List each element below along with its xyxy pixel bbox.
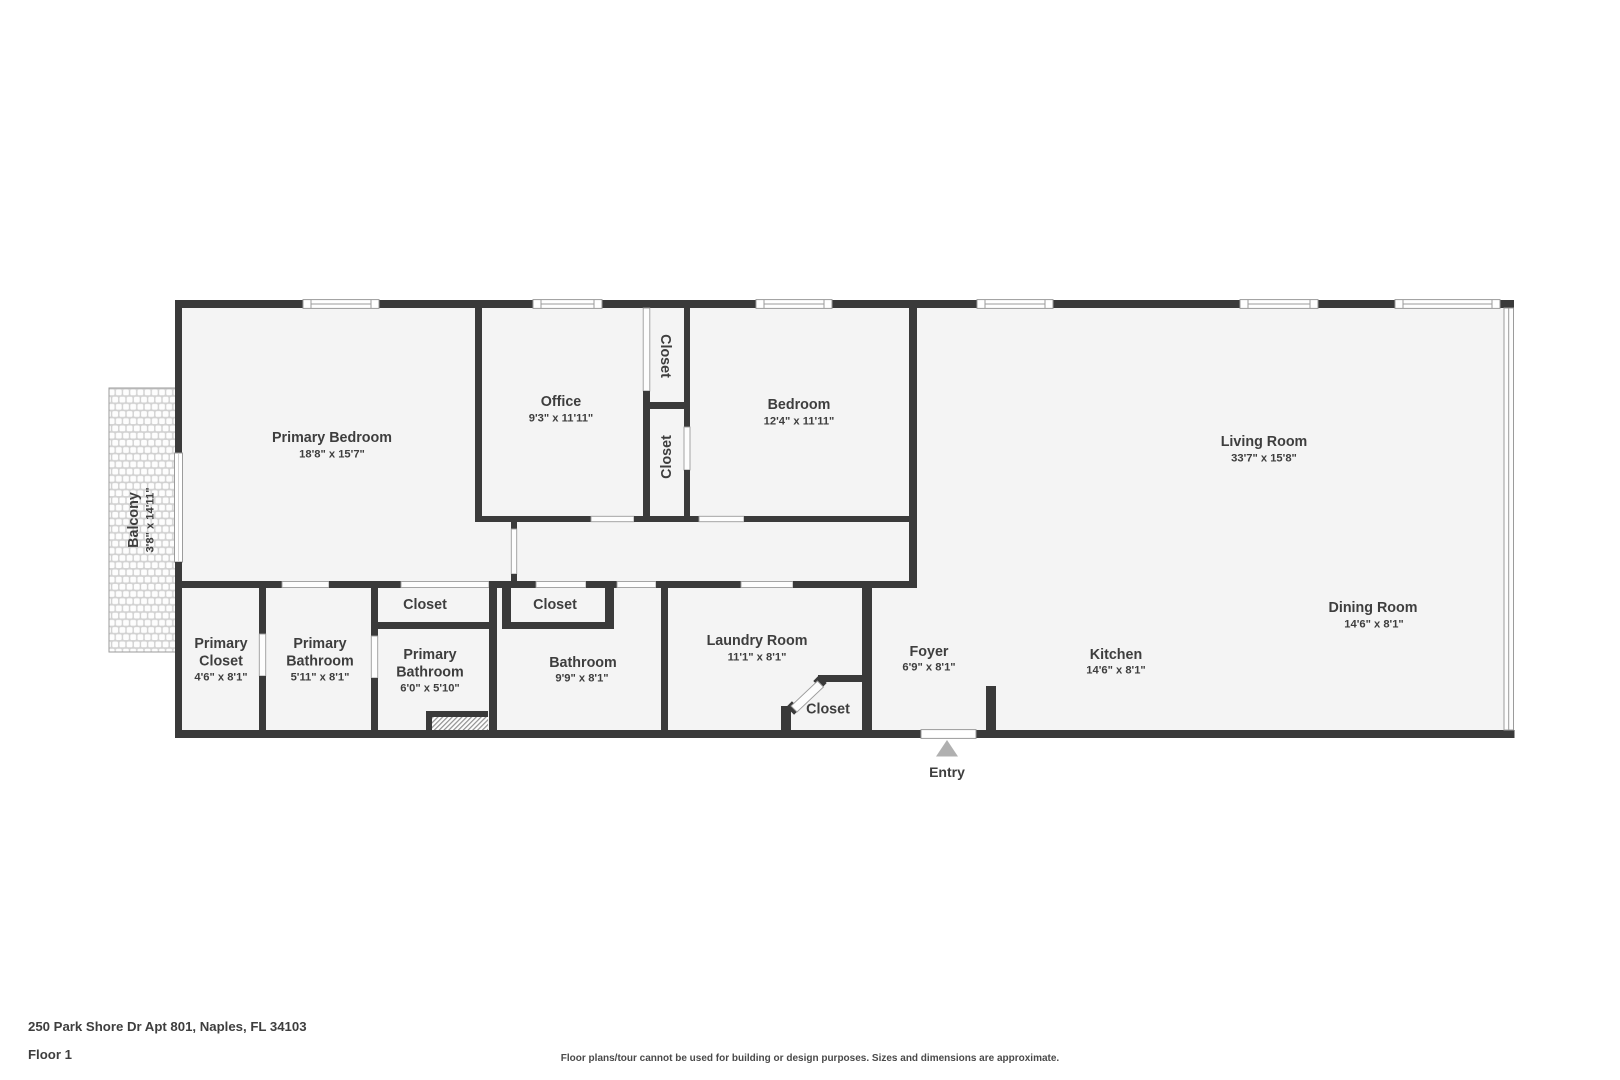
svg-text:Bathroom: Bathroom bbox=[549, 655, 617, 671]
svg-text:Dining Room: Dining Room bbox=[1329, 600, 1418, 616]
svg-text:Balcony: Balcony bbox=[126, 492, 142, 548]
svg-text:11'1" x 8'1": 11'1" x 8'1" bbox=[728, 652, 787, 664]
svg-text:Closet: Closet bbox=[659, 435, 675, 479]
svg-text:18'8" x 15'7": 18'8" x 15'7" bbox=[299, 449, 365, 461]
svg-text:5'11" x 8'1": 5'11" x 8'1" bbox=[291, 672, 350, 684]
svg-text:Bathroom: Bathroom bbox=[286, 654, 354, 670]
svg-text:Bathroom: Bathroom bbox=[396, 665, 464, 681]
svg-text:Closet: Closet bbox=[403, 597, 447, 613]
svg-text:12'4" x 11'11": 12'4" x 11'11" bbox=[764, 416, 835, 428]
svg-text:Bedroom: Bedroom bbox=[768, 397, 831, 413]
svg-text:Closet: Closet bbox=[533, 597, 577, 613]
svg-text:4'6" x 8'1": 4'6" x 8'1" bbox=[194, 672, 247, 684]
svg-text:250 Park Shore Dr Apt 801, Nap: 250 Park Shore Dr Apt 801, Naples, FL 34… bbox=[28, 1019, 307, 1034]
svg-text:3'8" x 14'11": 3'8" x 14'11" bbox=[145, 487, 157, 552]
svg-text:Closet: Closet bbox=[806, 702, 850, 718]
svg-text:Laundry Room: Laundry Room bbox=[707, 633, 808, 649]
svg-text:6'9" x 8'1": 6'9" x 8'1" bbox=[902, 662, 955, 674]
svg-text:Living Room: Living Room bbox=[1221, 434, 1308, 450]
svg-text:Office: Office bbox=[541, 394, 582, 410]
svg-text:33'7" x 15'8": 33'7" x 15'8" bbox=[1231, 453, 1297, 465]
svg-text:14'6" x 8'1": 14'6" x 8'1" bbox=[1344, 619, 1403, 631]
svg-text:9'9" x 8'1": 9'9" x 8'1" bbox=[555, 673, 608, 685]
svg-text:Closet: Closet bbox=[657, 334, 673, 378]
svg-text:Kitchen: Kitchen bbox=[1090, 647, 1142, 663]
svg-text:Entry: Entry bbox=[929, 764, 965, 780]
svg-text:6'0" x 5'10": 6'0" x 5'10" bbox=[400, 683, 459, 695]
svg-text:14'6" x 8'1": 14'6" x 8'1" bbox=[1086, 665, 1145, 677]
svg-text:Primary: Primary bbox=[293, 636, 346, 652]
svg-text:Floor plans/tour cannot be use: Floor plans/tour cannot be used for buil… bbox=[561, 1053, 1060, 1064]
svg-text:9'3" x 11'11": 9'3" x 11'11" bbox=[529, 413, 593, 425]
svg-text:Primary Bedroom: Primary Bedroom bbox=[272, 430, 392, 446]
svg-text:Floor 1: Floor 1 bbox=[28, 1047, 72, 1062]
svg-text:Primary: Primary bbox=[403, 647, 456, 663]
svg-text:Foyer: Foyer bbox=[910, 644, 949, 660]
svg-text:Closet: Closet bbox=[199, 654, 243, 670]
svg-text:Primary: Primary bbox=[194, 636, 247, 652]
